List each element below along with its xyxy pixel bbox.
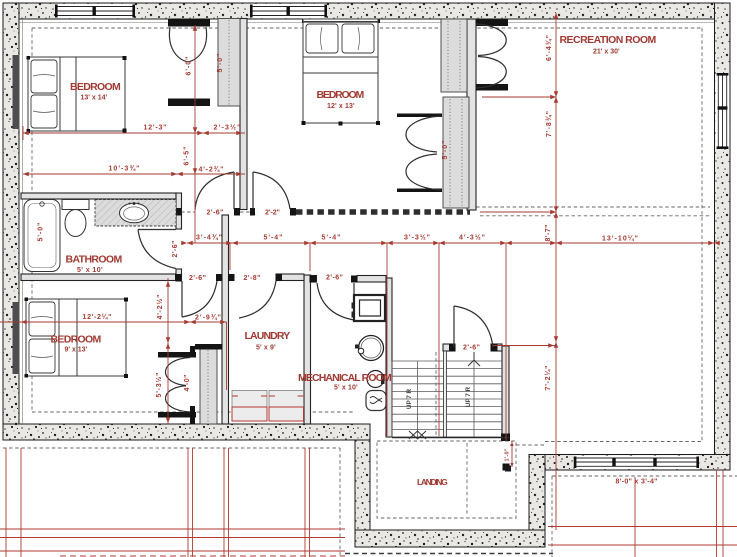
- svg-text:12'-3": 12'-3": [144, 125, 167, 132]
- svg-text:12'-2¼": 12'-2¼": [83, 313, 112, 321]
- svg-text:7'-2¼": 7'-2¼": [544, 366, 552, 391]
- svg-text:6'-4¾": 6'-4¾": [545, 35, 553, 61]
- svg-text:8'-0" x 3'-4": 8'-0" x 3'-4": [616, 479, 658, 486]
- svg-text:4'-3½": 4'-3½": [459, 234, 485, 242]
- svg-text:BEDROOM: BEDROOM: [317, 89, 365, 101]
- svg-text:UP 7 R: UP 7 R: [406, 388, 413, 409]
- svg-text:5'-4": 5'-4": [264, 235, 283, 242]
- svg-text:13' x 14': 13' x 14': [81, 95, 108, 102]
- svg-text:LANDING: LANDING: [417, 477, 448, 487]
- svg-text:6'-0": 6'-0": [186, 57, 193, 76]
- svg-text:8'-7": 8'-7": [545, 225, 552, 242]
- svg-text:9' x 13': 9' x 13': [65, 347, 88, 354]
- svg-text:10'-3¾": 10'-3¾": [109, 165, 140, 173]
- svg-text:2'-8": 2'-8": [244, 275, 261, 282]
- svg-text:5'-0": 5'-0": [38, 223, 45, 242]
- svg-text:2'-6": 2'-6": [189, 275, 206, 282]
- svg-text:BEDROOM: BEDROOM: [70, 81, 121, 93]
- svg-text:4'-2¾": 4'-2¾": [199, 166, 224, 174]
- svg-text:2'-6": 2'-6": [326, 275, 343, 282]
- svg-text:2'-6": 2'-6": [463, 345, 480, 352]
- svg-text:5'-0": 5'-0": [217, 54, 224, 73]
- svg-text:6'-5": 6'-5": [184, 147, 191, 166]
- svg-text:2'-9¾": 2'-9¾": [195, 314, 221, 322]
- svg-text:5'-4": 5'-4": [322, 235, 341, 242]
- svg-text:UP 7 R: UP 7 R: [465, 386, 472, 407]
- svg-text:RECREATION ROOM: RECREATION ROOM: [560, 34, 657, 46]
- svg-text:BEDROOM: BEDROOM: [51, 334, 102, 346]
- svg-text:5'-0": 5'-0": [442, 141, 449, 160]
- svg-text:5' x 10': 5' x 10': [77, 267, 103, 274]
- svg-text:21' x 30': 21' x 30': [593, 49, 620, 56]
- svg-text:2'-6": 2'-6": [172, 241, 179, 258]
- svg-text:4'-2½": 4'-2½": [156, 295, 164, 320]
- svg-text:4'-0": 4'-0": [184, 375, 191, 392]
- svg-text:LAUNDRY: LAUNDRY: [245, 330, 291, 342]
- svg-text:13'-10¼": 13'-10¼": [602, 235, 638, 243]
- svg-text:7'-8¾": 7'-8¾": [545, 111, 553, 137]
- svg-text:3'-4¾": 3'-4¾": [196, 234, 222, 242]
- svg-text:5' x 9': 5' x 9': [256, 345, 276, 352]
- svg-text:1'-0": 1'-0": [505, 448, 511, 461]
- svg-text:5'-3½": 5'-3½": [155, 373, 163, 398]
- svg-text:5' x 10': 5' x 10': [334, 385, 358, 392]
- svg-text:MECHANICAL ROOM: MECHANICAL ROOM: [298, 372, 392, 384]
- svg-text:12' x 13': 12' x 13': [327, 103, 355, 110]
- svg-text:2'-2": 2'-2": [265, 210, 280, 217]
- svg-text:3'-3½": 3'-3½": [404, 234, 430, 242]
- svg-text:2'-6": 2'-6": [207, 210, 224, 217]
- svg-text:BATHROOM: BATHROOM: [66, 254, 123, 266]
